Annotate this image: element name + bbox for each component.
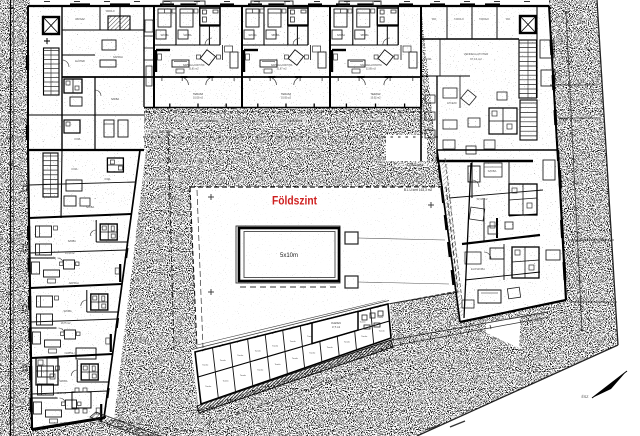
svg-text:ÉSZ: ÉSZ bbox=[582, 394, 590, 399]
svg-text:Tarolo: Tarolo bbox=[257, 368, 264, 371]
svg-text:ATU kert 40,5 m2: ATU kert 40,5 m2 bbox=[150, 178, 175, 182]
svg-text:1756/1 hrsz: 1756/1 hrsz bbox=[407, 163, 424, 167]
svg-text:Tarolo: Tarolo bbox=[275, 363, 282, 366]
svg-text:KAZAN: KAZAN bbox=[331, 321, 340, 325]
svg-text:Tarolo: Tarolo bbox=[292, 357, 299, 360]
svg-text:ATU kert allomany: ATU kert allomany bbox=[192, 119, 218, 123]
svg-text:OTP Bank szint: OTP Bank szint bbox=[280, 119, 302, 123]
svg-text:Tarolo: Tarolo bbox=[205, 385, 212, 388]
svg-text:Tarolo: Tarolo bbox=[309, 352, 316, 355]
svg-text:Tarolo: Tarolo bbox=[255, 349, 262, 352]
svg-text:Tarolo: Tarolo bbox=[272, 345, 279, 348]
svg-text:Tarolo: Tarolo bbox=[360, 321, 367, 324]
svg-text:ATU piac szint: ATU piac szint bbox=[152, 130, 172, 134]
svg-text:17,5 m2: 17,5 m2 bbox=[332, 327, 341, 329]
svg-text:Tarolo: Tarolo bbox=[237, 354, 244, 357]
svg-text:1.Folyoso allomas: 1.Folyoso allomas bbox=[357, 119, 383, 123]
svg-text:Tarolo: Tarolo bbox=[240, 374, 247, 377]
svg-text:Tarolo: Tarolo bbox=[327, 346, 334, 349]
svg-text:Tarolo: Tarolo bbox=[223, 380, 230, 383]
svg-text:Tarolo: Tarolo bbox=[290, 340, 297, 343]
svg-text:Tarolo: Tarolo bbox=[220, 359, 227, 362]
svg-text:Tarolo: Tarolo bbox=[379, 329, 386, 332]
svg-text:Tarolo: Tarolo bbox=[344, 341, 351, 344]
svg-text:Tarolo: Tarolo bbox=[361, 335, 368, 338]
svg-text:Tarolo: Tarolo bbox=[202, 364, 209, 367]
svg-text:1756/2 hrsz 3014 m2: 1756/2 hrsz 3014 m2 bbox=[285, 147, 315, 151]
